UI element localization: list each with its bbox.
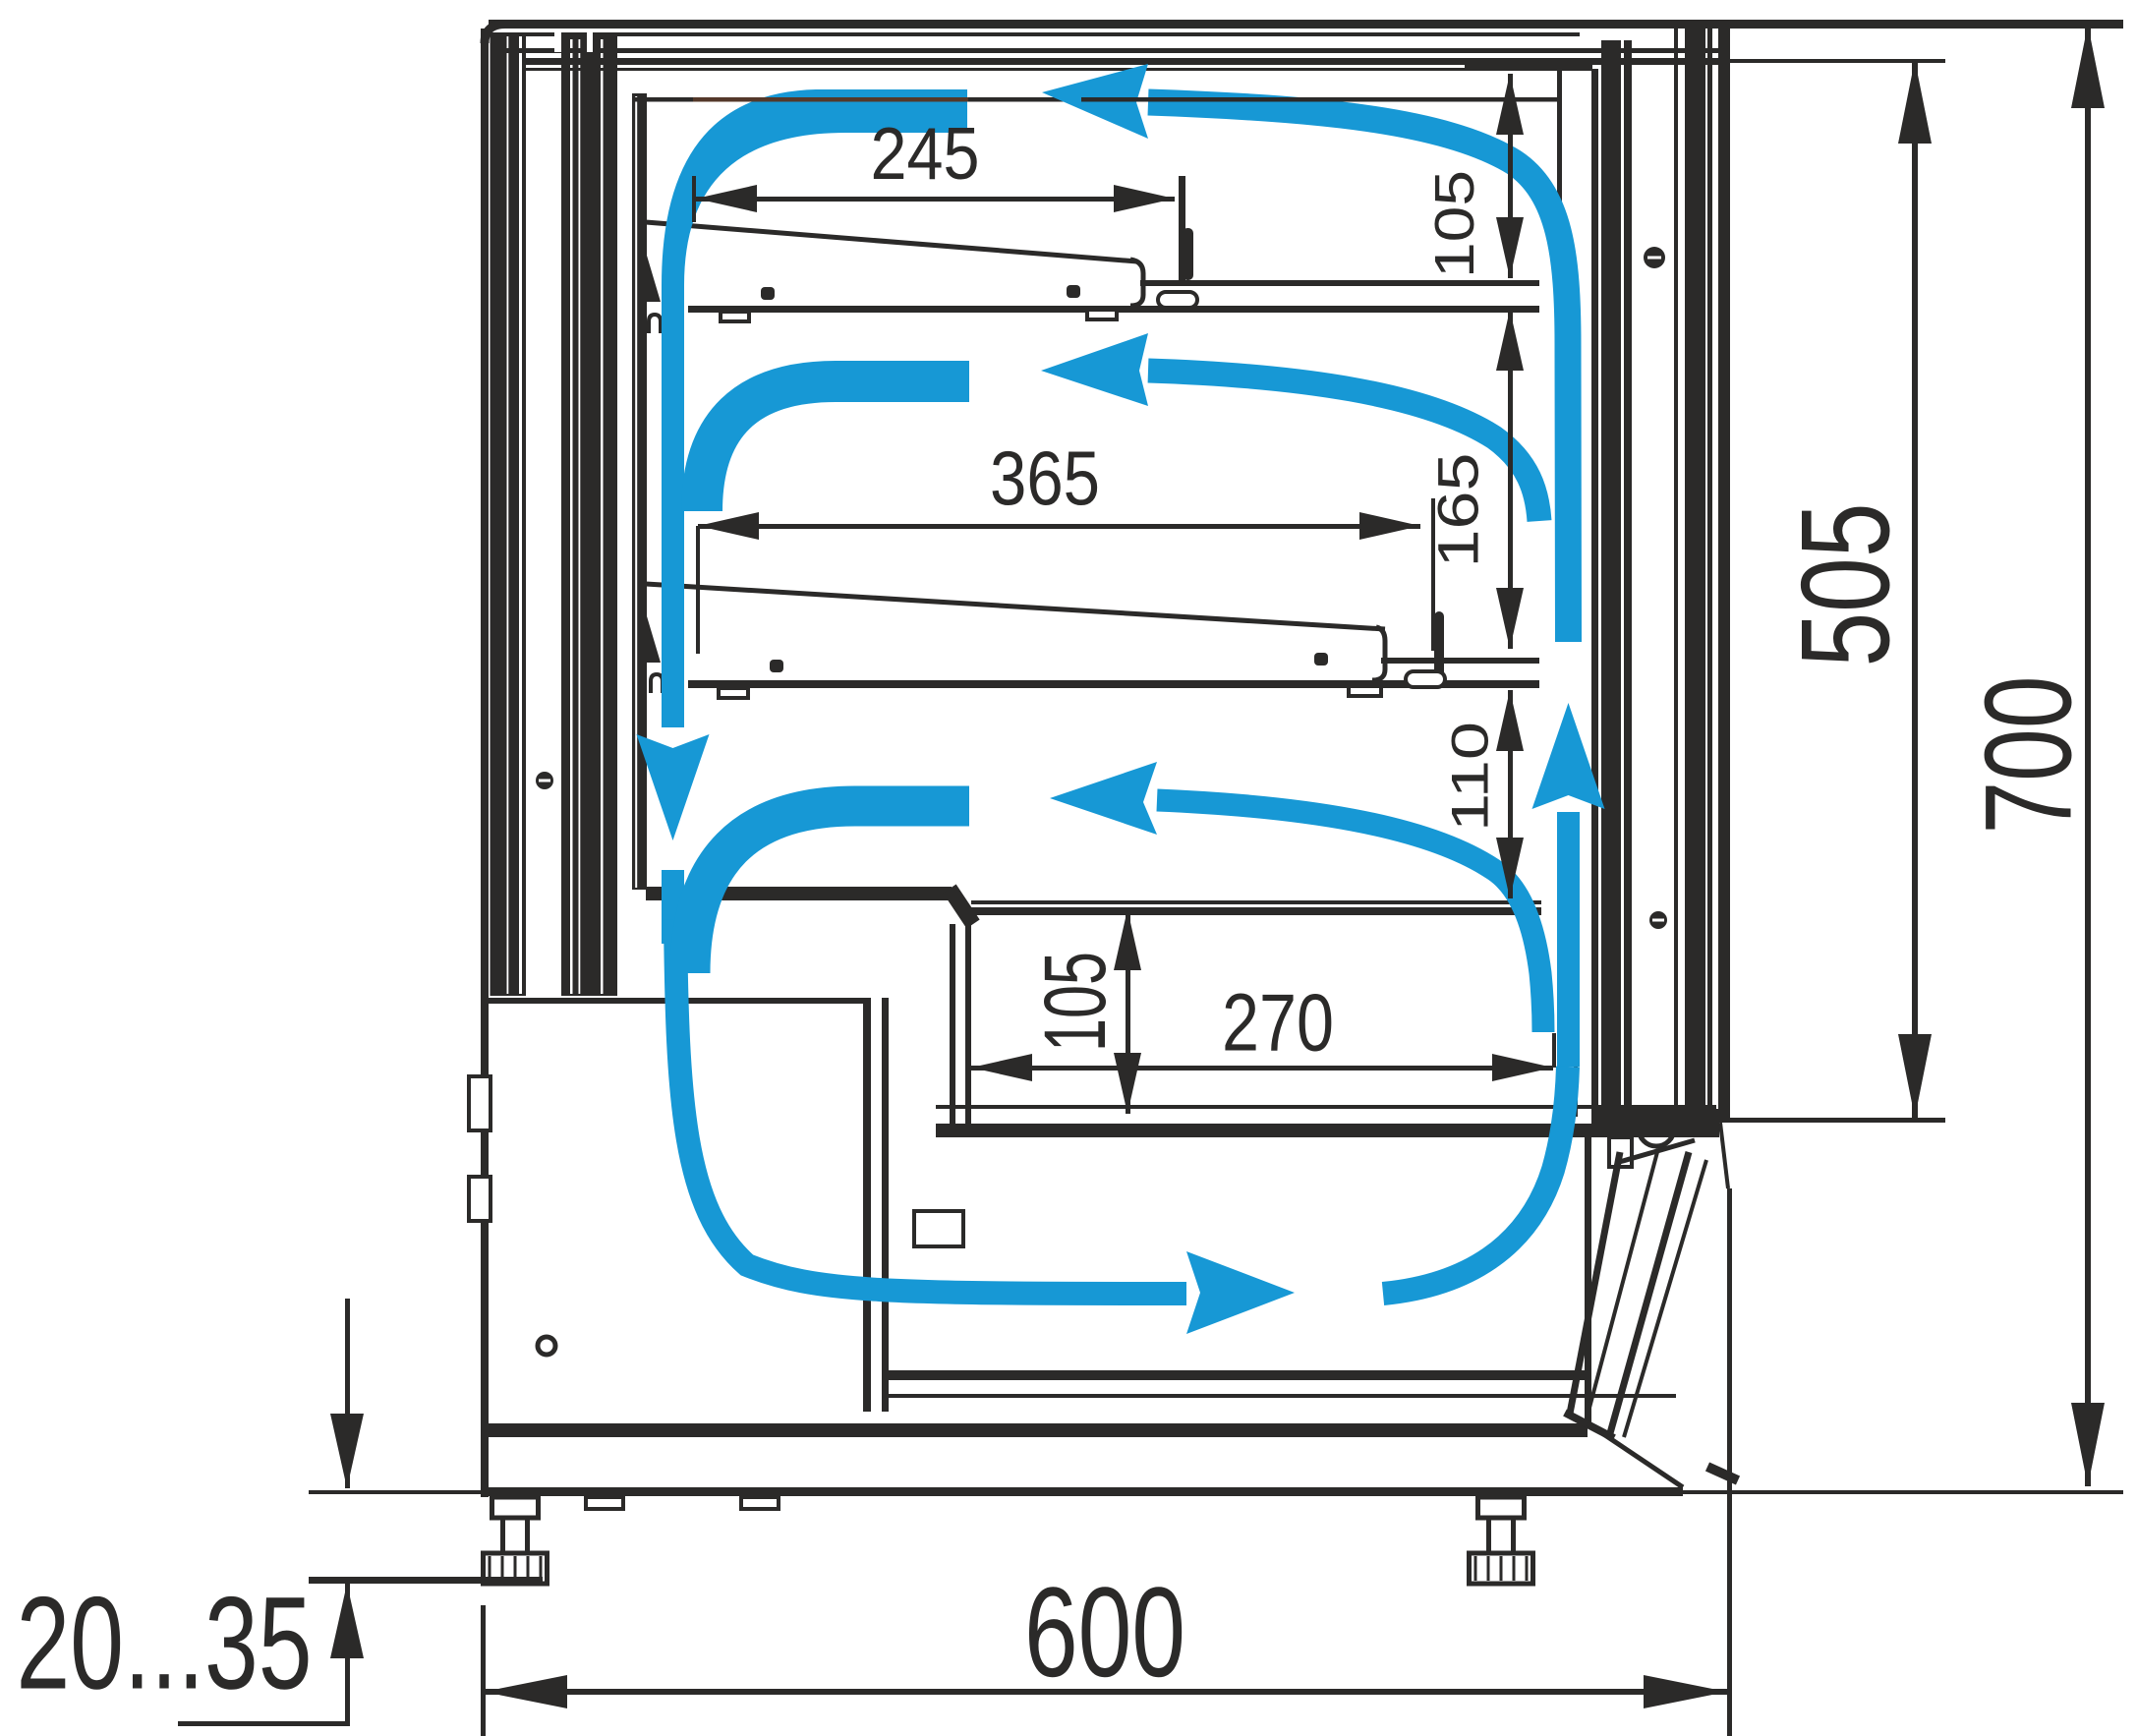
- svg-text:600: 600: [1024, 1560, 1185, 1704]
- svg-text:270: 270: [1222, 977, 1334, 1069]
- svg-text:365: 365: [990, 434, 1100, 521]
- svg-text:700: 700: [1961, 676, 2098, 835]
- svg-text:165: 165: [1427, 453, 1491, 568]
- svg-text:105: 105: [1423, 170, 1486, 278]
- svg-text:105: 105: [1025, 952, 1124, 1052]
- svg-text:20...35: 20...35: [17, 1571, 313, 1717]
- svg-text:245: 245: [871, 112, 980, 195]
- svg-text:505: 505: [1776, 503, 1917, 667]
- svg-text:110: 110: [1442, 722, 1500, 832]
